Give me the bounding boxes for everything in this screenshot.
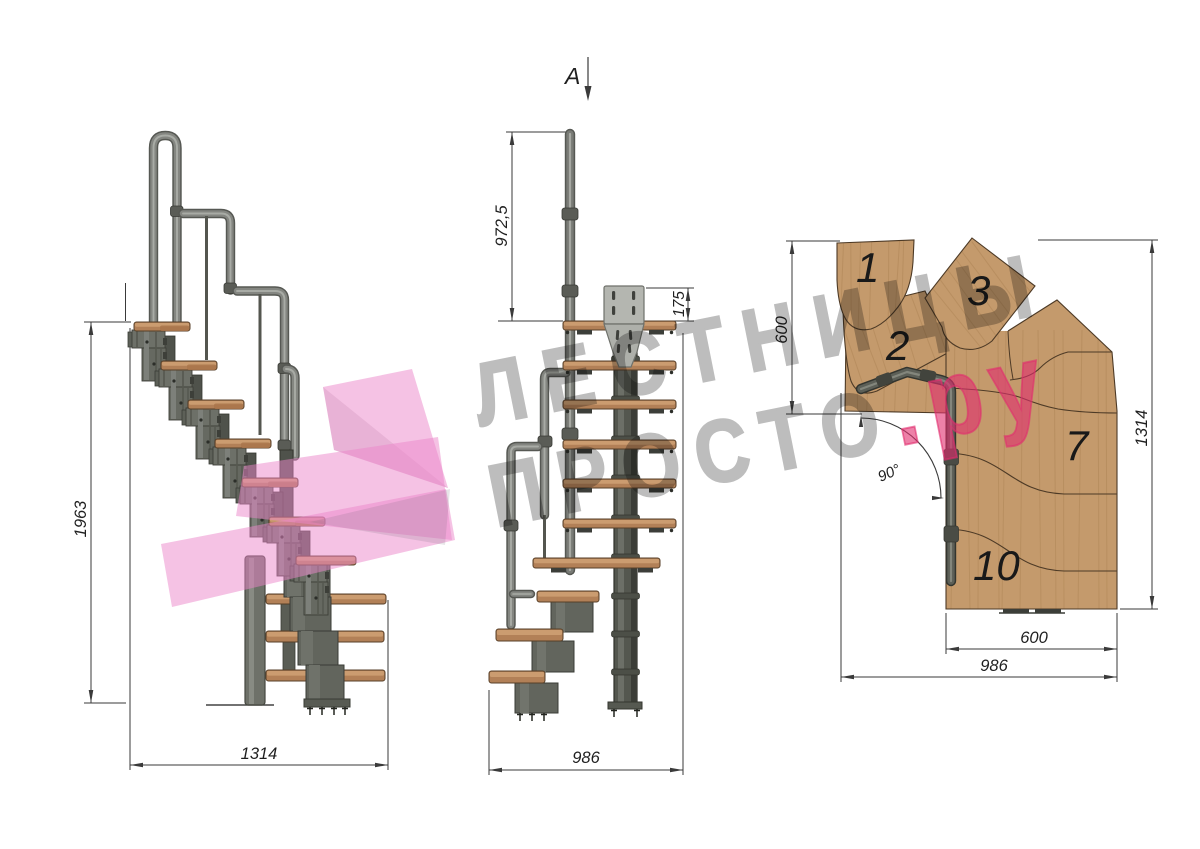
svg-text:A: A (563, 63, 580, 89)
svg-text:7: 7 (1065, 422, 1090, 469)
svg-text:1314: 1314 (1133, 410, 1151, 447)
svg-text:1963: 1963 (72, 500, 90, 538)
svg-text:600: 600 (1020, 629, 1048, 647)
svg-text:972,5: 972,5 (493, 205, 511, 247)
svg-text:986: 986 (572, 749, 600, 767)
svg-text:1314: 1314 (241, 745, 278, 763)
svg-text:986: 986 (980, 657, 1008, 675)
svg-text:10: 10 (973, 542, 1020, 589)
